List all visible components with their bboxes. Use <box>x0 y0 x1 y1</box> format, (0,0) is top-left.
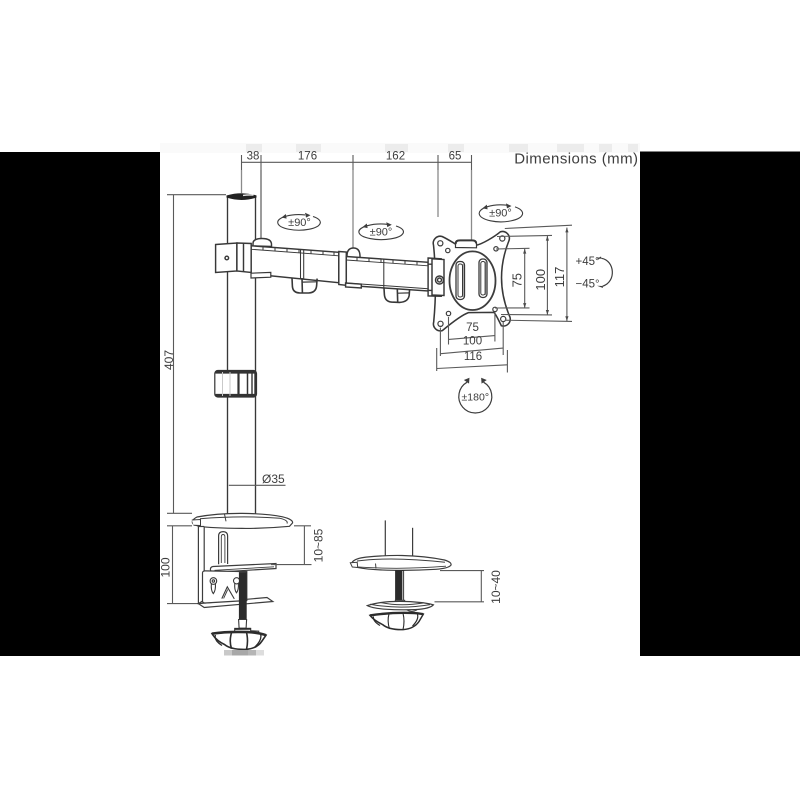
svg-text:10~40: 10~40 <box>489 570 503 604</box>
svg-text:−45°: −45° <box>576 279 600 291</box>
svg-text:±90°: ±90° <box>489 208 512 220</box>
svg-text:±90°: ±90° <box>288 217 311 229</box>
svg-text:116: 116 <box>464 351 482 363</box>
svg-text:75: 75 <box>466 322 479 334</box>
svg-text:Ø35: Ø35 <box>262 472 285 486</box>
svg-text:±180°: ±180° <box>462 392 489 404</box>
svg-text:100: 100 <box>533 269 548 291</box>
svg-text:176: 176 <box>298 151 317 163</box>
svg-text:±90°: ±90° <box>370 227 393 239</box>
svg-text:65: 65 <box>449 151 462 163</box>
svg-text:75: 75 <box>510 273 525 287</box>
svg-text:Dimensions (mm): Dimensions (mm) <box>514 151 638 168</box>
svg-text:162: 162 <box>386 151 405 163</box>
svg-text:407: 407 <box>162 350 176 370</box>
svg-text:+45°: +45° <box>576 256 600 268</box>
svg-text:38: 38 <box>247 151 260 163</box>
svg-text:100: 100 <box>159 557 173 577</box>
svg-text:100: 100 <box>463 336 482 348</box>
svg-text:117: 117 <box>552 267 567 288</box>
svg-text:10~85: 10~85 <box>312 528 326 562</box>
